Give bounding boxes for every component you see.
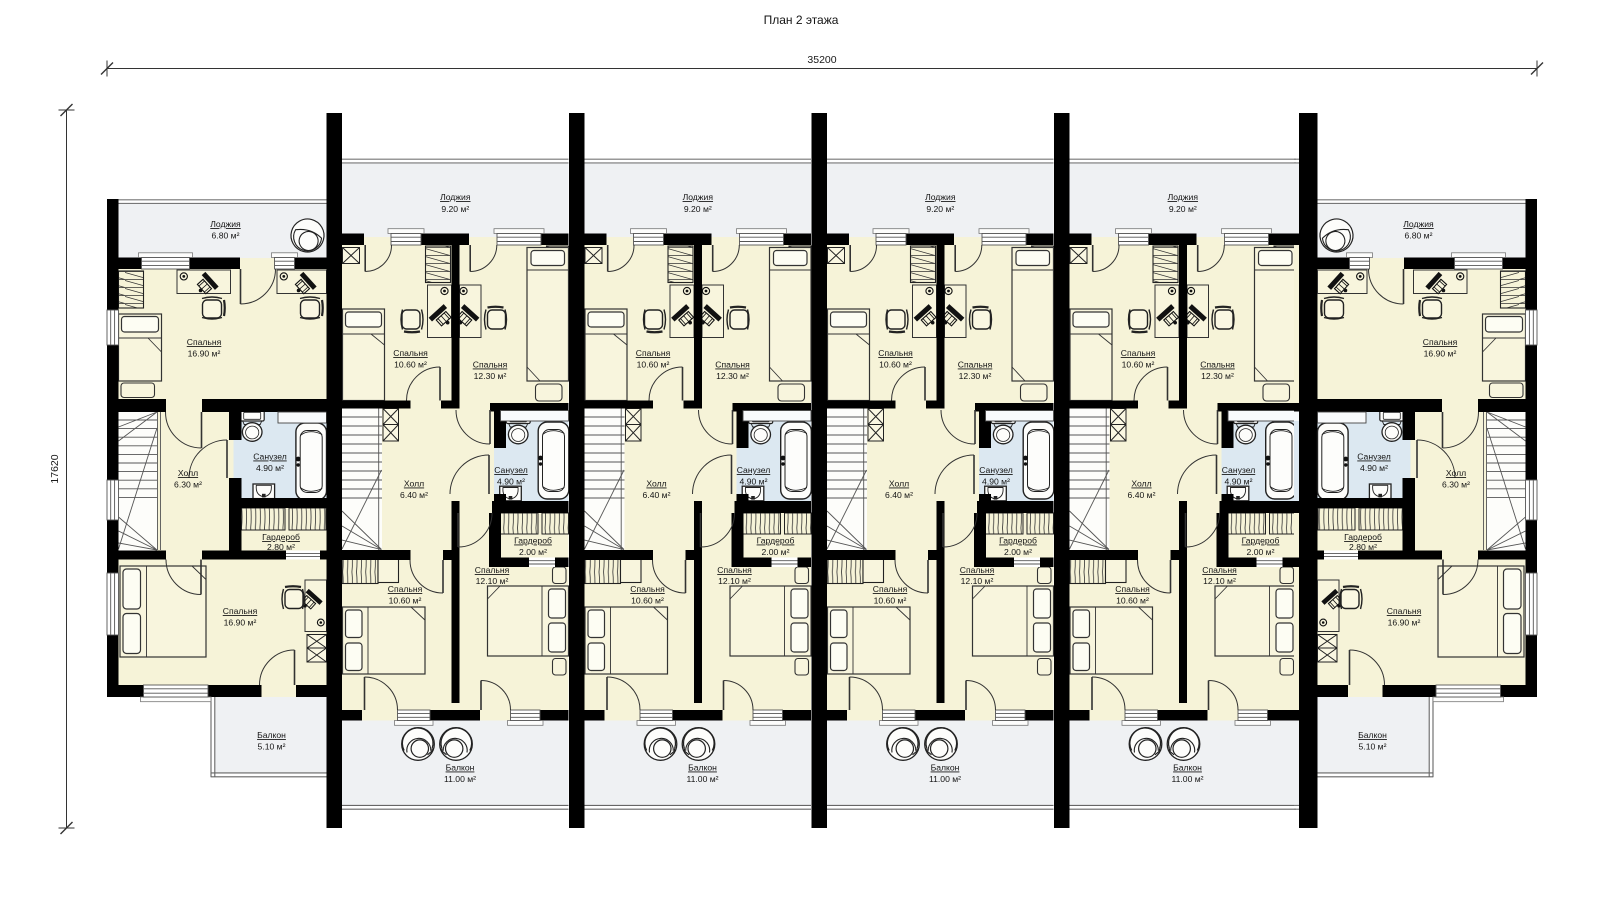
- svg-text:4.90 м²: 4.90 м²: [256, 463, 284, 473]
- svg-text:2.80 м²: 2.80 м²: [1349, 542, 1377, 552]
- svg-text:Холл: Холл: [1446, 468, 1466, 478]
- svg-text:4.90 м²: 4.90 м²: [1360, 463, 1388, 473]
- svg-text:Балкон: Балкон: [1358, 730, 1387, 740]
- svg-text:Лоджия: Лоджия: [1403, 219, 1434, 229]
- svg-text:Спальня: Спальня: [1423, 337, 1458, 347]
- svg-text:6.30 м²: 6.30 м²: [1442, 480, 1470, 490]
- svg-text:5.10 м²: 5.10 м²: [1359, 742, 1387, 752]
- svg-text:Спальня: Спальня: [223, 606, 258, 616]
- svg-text:Санузел: Санузел: [253, 452, 286, 462]
- svg-text:16.90 м²: 16.90 м²: [188, 349, 221, 359]
- svg-text:35200: 35200: [807, 54, 836, 66]
- svg-text:Гардероб: Гардероб: [1344, 532, 1382, 542]
- svg-text:Гардероб: Гардероб: [262, 532, 300, 542]
- svg-text:Балкон: Балкон: [257, 730, 286, 740]
- svg-text:Спальня: Спальня: [1387, 606, 1422, 616]
- svg-text:16.90 м²: 16.90 м²: [224, 618, 257, 628]
- svg-text:Лоджия: Лоджия: [210, 219, 241, 229]
- svg-text:Холл: Холл: [178, 468, 198, 478]
- svg-text:План 2 этажа: План 2 этажа: [764, 13, 839, 27]
- svg-text:5.10 м²: 5.10 м²: [258, 742, 286, 752]
- svg-text:2.80 м²: 2.80 м²: [267, 542, 295, 552]
- svg-text:Спальня: Спальня: [187, 337, 222, 347]
- svg-text:17620: 17620: [49, 454, 61, 483]
- svg-text:Санузел: Санузел: [1357, 452, 1390, 462]
- svg-text:16.90 м²: 16.90 м²: [1424, 349, 1457, 359]
- svg-text:6.80 м²: 6.80 м²: [1405, 231, 1433, 241]
- svg-text:6.80 м²: 6.80 м²: [212, 231, 240, 241]
- svg-text:16.90 м²: 16.90 м²: [1388, 618, 1421, 628]
- svg-text:6.30 м²: 6.30 м²: [174, 480, 202, 490]
